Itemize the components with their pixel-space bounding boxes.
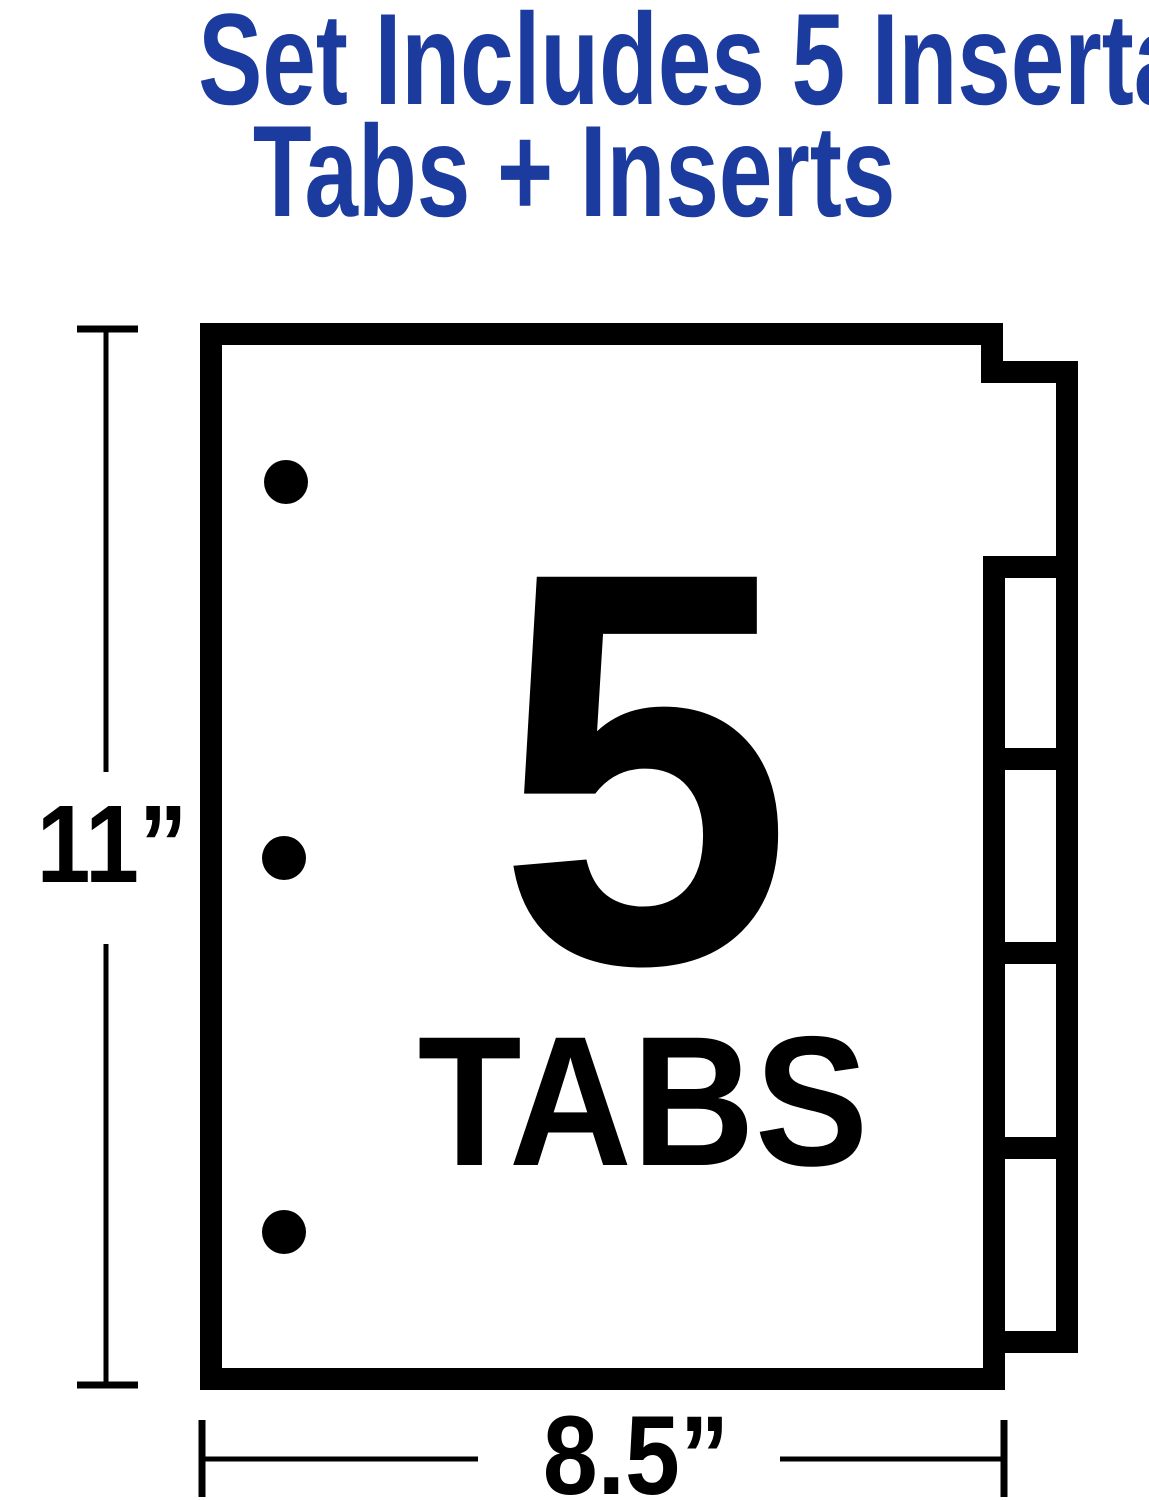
binder-hole-top [264,460,308,504]
tab-count-word: TABS [418,1010,869,1195]
product-diagram-page: Set Includes 5 Insertable Tabs + Inserts… [0,0,1149,1500]
binder-hole-bottom [262,1210,306,1254]
tab-count-number: 5 [497,488,793,1048]
width-dimension-label: 8.5” [543,1400,729,1500]
height-dimension-label: 11” [37,790,188,900]
binder-hole-middle [262,836,306,880]
